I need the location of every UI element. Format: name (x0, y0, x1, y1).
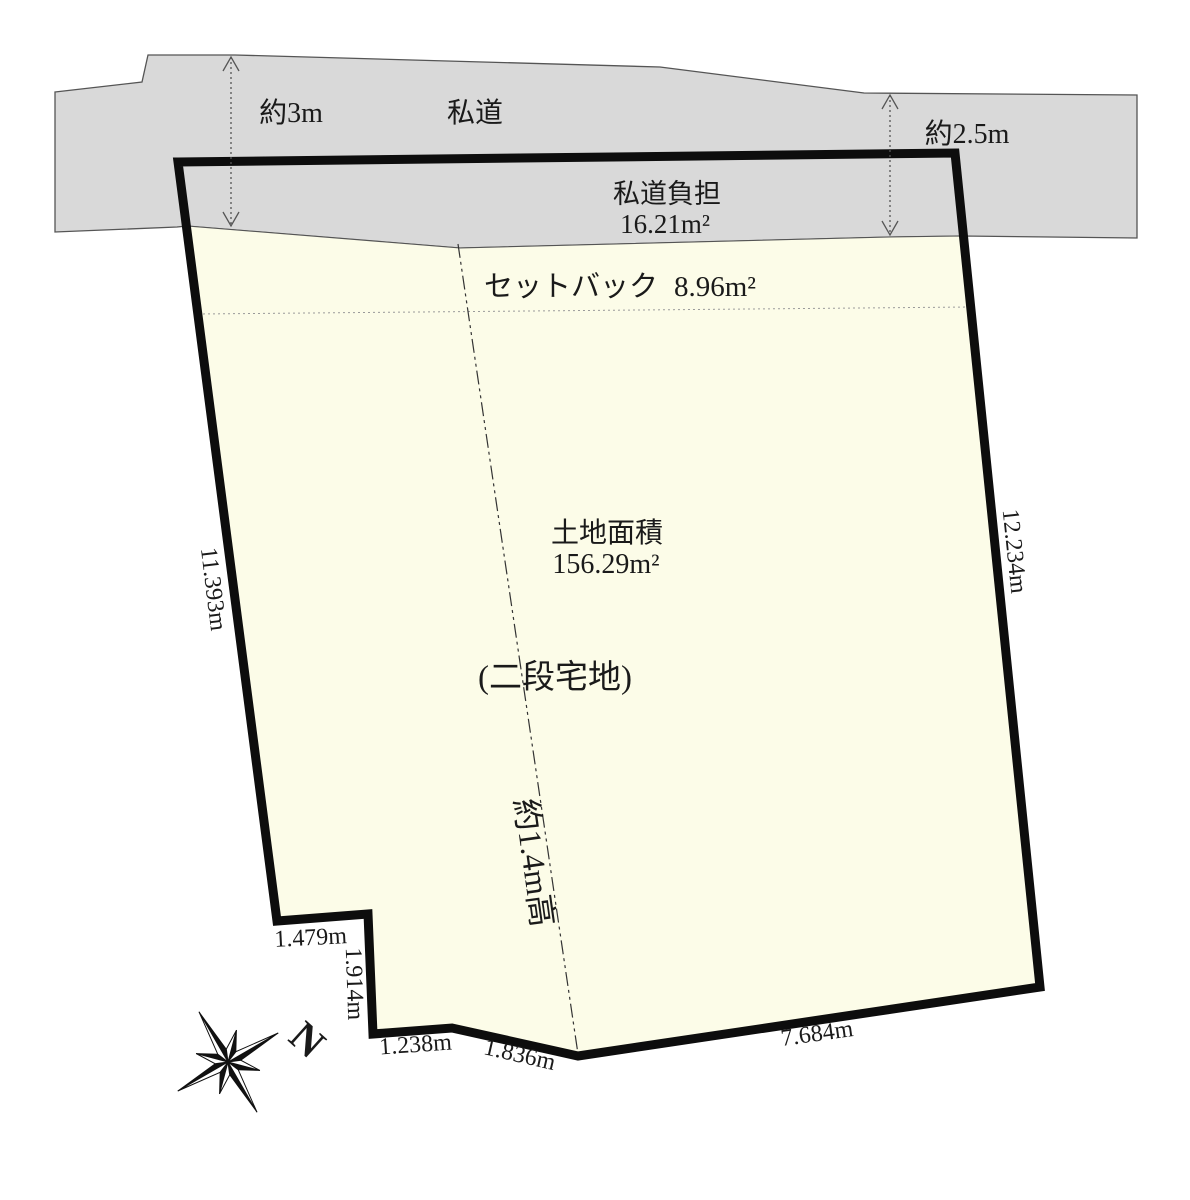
setback-label-text: セットバック (484, 271, 658, 303)
land-area-value: 156.29m² (552, 549, 659, 580)
land-plot-diagram: 約3m 私道 約2.5m 私道負担 16.21m² セットバック8.96m² 土… (0, 0, 1190, 1200)
setback-label: セットバック8.96m² (484, 271, 756, 303)
edge-notch-top-dimension: 1.479m (274, 923, 348, 953)
two-tier-note: (二段宅地) (478, 659, 632, 696)
road-width-left-label: 約3m (259, 97, 323, 129)
road-burden-area: 16.21m² (620, 209, 710, 239)
compass-north-label: N (280, 1013, 333, 1067)
compass-rose-icon (178, 1012, 278, 1112)
land-area-label: 土地面積 (551, 517, 663, 549)
edge-notch-side-dimension: 1.914m (340, 947, 369, 1021)
setback-area-value: 8.96m² (674, 271, 756, 303)
edge-bottom-left-dimension: 1.238m (378, 1029, 453, 1060)
private-road-label: 私道 (447, 97, 503, 129)
plot-diagram-canvas: 約3m 私道 約2.5m 私道負担 16.21m² セットバック8.96m² 土… (0, 0, 1190, 1200)
road-burden-label: 私道負担 (613, 179, 721, 209)
private-road-area (55, 55, 1137, 248)
road-width-right-label: 約2.5m (925, 118, 1010, 150)
